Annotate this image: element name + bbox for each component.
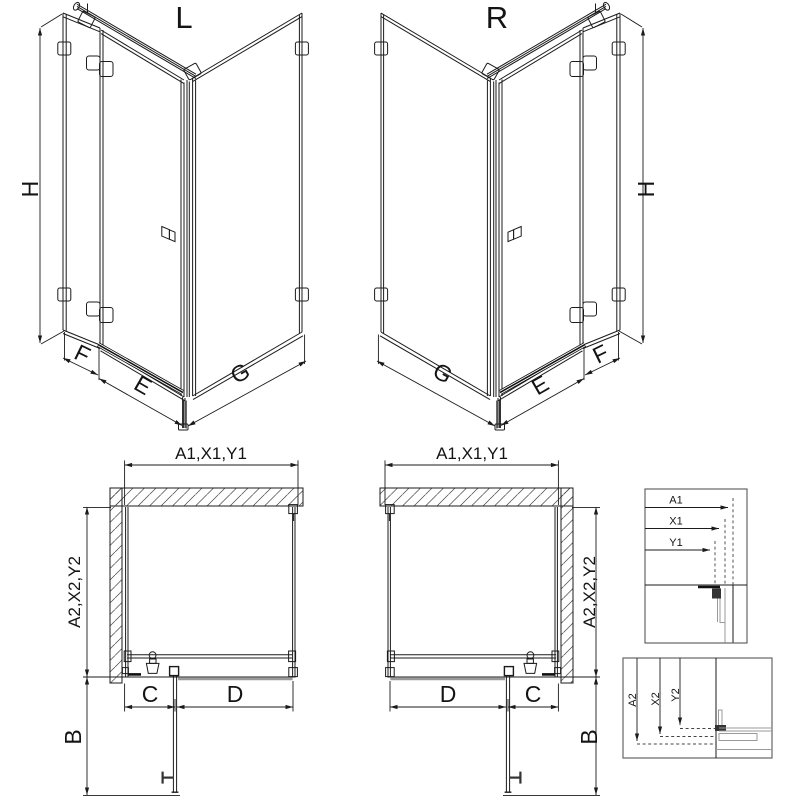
iso-left-dim-e: E bbox=[130, 370, 156, 400]
detail-x1-label: X1 bbox=[669, 516, 682, 528]
detail-y1-label: Y1 bbox=[669, 537, 682, 549]
plan-right-dim-d: D bbox=[440, 681, 457, 707]
iso-left-dim-f: F bbox=[70, 339, 94, 369]
shower-enclosure-technical-drawing: L H F E G R H F E G A1,X1,Y1 A2,X2,Y2 C … bbox=[0, 0, 800, 800]
iso-left-title-label: L bbox=[175, 0, 192, 35]
plan-right-dim-c: C bbox=[525, 681, 542, 707]
iso-right-dim-e: E bbox=[527, 370, 553, 400]
detail-y2-label: Y2 bbox=[670, 688, 682, 701]
plan-left-side-wall bbox=[110, 488, 122, 683]
plan-right-side-wall bbox=[561, 488, 573, 683]
plan-left-top-wall bbox=[110, 488, 303, 506]
plan-left-dim-c: C bbox=[142, 681, 159, 707]
detail-box-depth: A2 X2 Y2 bbox=[623, 658, 772, 758]
iso-right-title-label: R bbox=[486, 0, 508, 35]
iso-view-left: L H F E G bbox=[17, 0, 308, 430]
plan-left-dim-a1x1y1: A1,X1,Y1 bbox=[175, 444, 247, 463]
plan-right-dim-a2x2y2: A2,X2,Y2 bbox=[580, 556, 599, 628]
iso-right-dim-f: F bbox=[588, 339, 612, 369]
plan-view-left: A1,X1,Y1 A2,X2,Y2 C D B bbox=[60, 444, 303, 795]
plan-left-dim-b: B bbox=[60, 729, 86, 744]
plan-left-dim-a2x2y2: A2,X2,Y2 bbox=[65, 556, 84, 628]
detail-a1-label: A1 bbox=[669, 495, 682, 507]
plan-left-dim-d: D bbox=[227, 681, 244, 707]
plan-right-top-wall bbox=[380, 488, 573, 506]
plan-right-dim-b: B bbox=[576, 729, 602, 744]
iso-right-dim-h: H bbox=[633, 181, 659, 198]
plan-view-right: A1,X1,Y1 A2,X2,Y2 D C B bbox=[380, 444, 602, 795]
plan-right-dim-a1x1y1: A1,X1,Y1 bbox=[436, 444, 508, 463]
iso-view-right: R H F E G bbox=[375, 0, 659, 430]
detail-a2-label: A2 bbox=[627, 693, 639, 706]
iso-left-dim-h: H bbox=[17, 181, 43, 198]
detail-box-width: A1 X1 Y1 bbox=[645, 489, 747, 643]
detail-x2-label: X2 bbox=[650, 692, 662, 705]
drawing-canvas: L H F E G R H F E G A1,X1,Y1 A2,X2,Y2 C … bbox=[0, 0, 800, 800]
